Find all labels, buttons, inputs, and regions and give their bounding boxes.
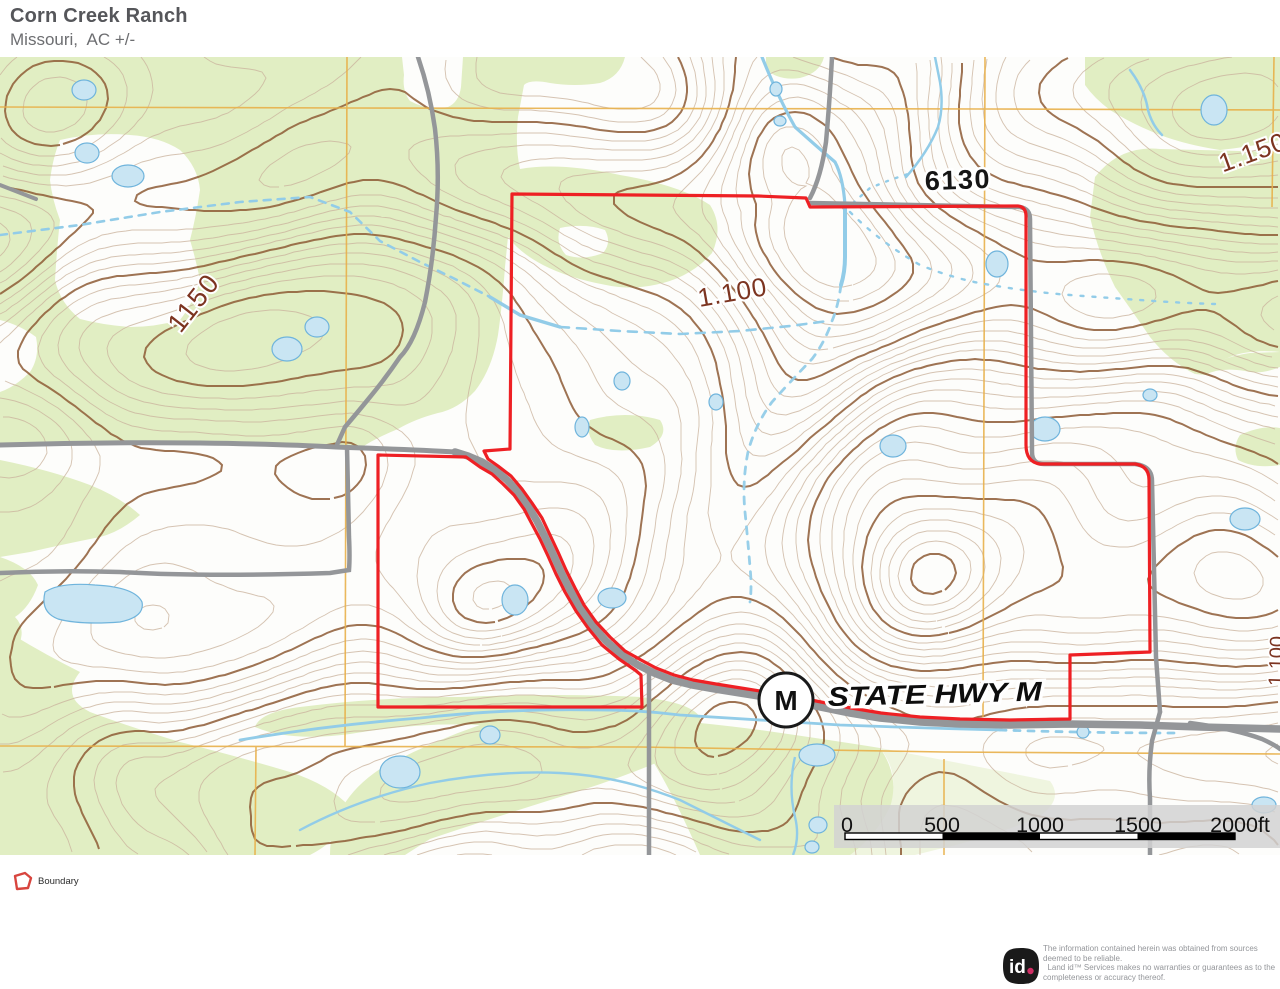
svg-text:M: M	[774, 685, 797, 716]
svg-text:STATE HWY M: STATE HWY M	[827, 676, 1042, 712]
svg-text:id: id	[1009, 957, 1026, 978]
svg-text:1.100: 1.100	[1265, 636, 1280, 687]
svg-text:6130: 6130	[924, 164, 991, 196]
